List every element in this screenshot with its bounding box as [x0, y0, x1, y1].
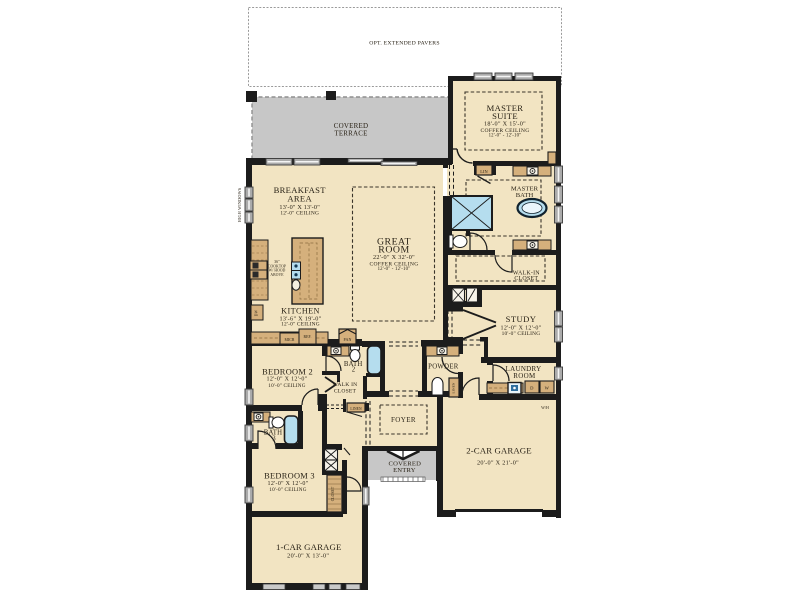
- svg-text:BEDROOM 3: BEDROOM 3: [264, 472, 315, 481]
- svg-text:D: D: [530, 386, 534, 391]
- svg-text:20'-0" X 13'-0": 20'-0" X 13'-0": [287, 553, 329, 560]
- svg-text:12'-0" X 12'-0": 12'-0" X 12'-0": [267, 377, 308, 383]
- svg-text:1-CAR GARAGE: 1-CAR GARAGE: [276, 542, 341, 552]
- svg-text:LIN: LIN: [480, 169, 488, 174]
- svg-text:ABOVE: ABOVE: [270, 273, 284, 277]
- svg-text:ROOM: ROOM: [513, 372, 536, 380]
- svg-text:2-CAR GARAGE: 2-CAR GARAGE: [466, 446, 531, 456]
- svg-text:12'-0" - 12'-10": 12'-0" - 12'-10": [489, 133, 522, 138]
- svg-text:LINEN: LINEN: [350, 407, 362, 411]
- svg-text:MICR: MICR: [284, 338, 294, 342]
- svg-text:HIGH WINDOWS: HIGH WINDOWS: [237, 187, 242, 222]
- svg-text:W/H: W/H: [541, 406, 549, 410]
- svg-text:18'-0" X 15'-0": 18'-0" X 15'-0": [484, 120, 526, 127]
- svg-text:TERRACE: TERRACE: [334, 130, 367, 138]
- svg-text:POWDER: POWDER: [428, 363, 459, 370]
- svg-text:CLOSET: CLOSET: [334, 388, 357, 394]
- svg-text:22'-0" X 32'-0": 22'-0" X 32'-0": [373, 254, 415, 261]
- svg-text:CLOSET: CLOSET: [331, 486, 335, 501]
- svg-text:12'-0" - 12'-10": 12'-0" - 12'-10": [378, 267, 411, 272]
- svg-text:KITCHEN: KITCHEN: [281, 307, 320, 316]
- svg-text:W: W: [545, 386, 550, 391]
- svg-text:10'-0" CEILING: 10'-0" CEILING: [502, 331, 541, 337]
- svg-text:12'-0" CEILING: 12'-0" CEILING: [281, 322, 320, 328]
- svg-text:STUDY: STUDY: [506, 314, 537, 324]
- svg-text:10'-0" CEILING: 10'-0" CEILING: [268, 383, 305, 389]
- svg-text:3: 3: [272, 435, 276, 442]
- svg-text:PAN: PAN: [344, 337, 352, 342]
- svg-text:AREA: AREA: [287, 194, 312, 204]
- svg-text:OPT. EXTENDED PAVERS: OPT. EXTENDED PAVERS: [369, 41, 439, 47]
- svg-text:REF.: REF.: [303, 335, 311, 339]
- svg-text:CLOSET: CLOSET: [514, 276, 538, 282]
- svg-text:BATH: BATH: [516, 192, 534, 199]
- svg-text:FOYER: FOYER: [391, 416, 416, 424]
- svg-text:10'-0" CEILING: 10'-0" CEILING: [269, 487, 306, 493]
- svg-text:WALK IN: WALK IN: [333, 382, 358, 388]
- svg-text:2: 2: [352, 367, 356, 374]
- svg-text:ENTRY: ENTRY: [393, 467, 416, 474]
- svg-text:12'-0" CEILING: 12'-0" CEILING: [280, 211, 319, 217]
- svg-text:DW: DW: [255, 309, 259, 316]
- svg-text:LINEN: LINEN: [452, 382, 456, 393]
- svg-text:BEDROOM 2: BEDROOM 2: [262, 368, 313, 377]
- svg-text:20'-0" X 21'-0": 20'-0" X 21'-0": [477, 459, 519, 466]
